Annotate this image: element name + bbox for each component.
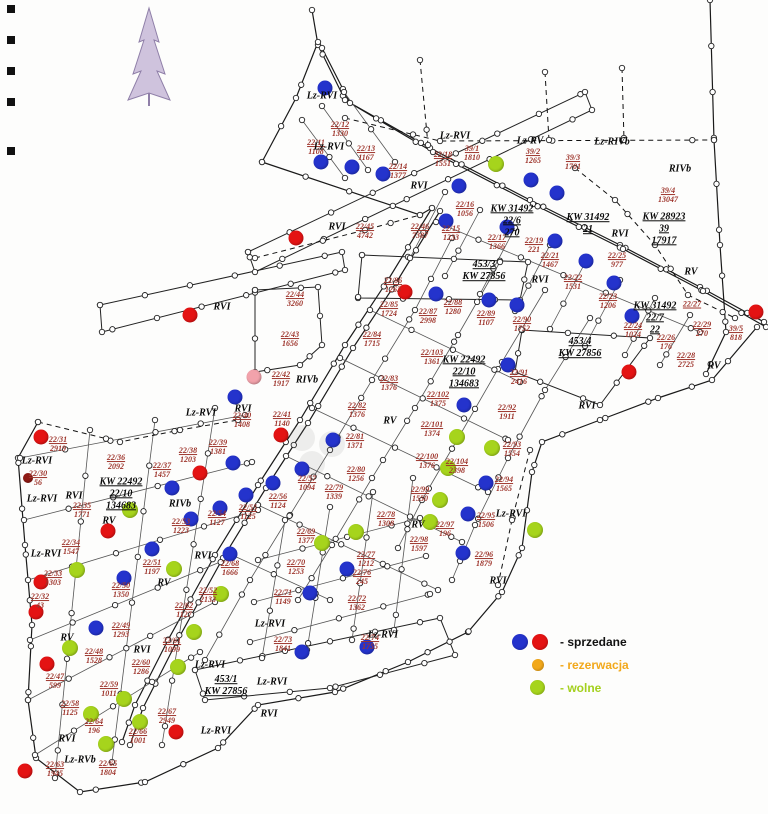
soil-class-label: RVI [410,181,427,192]
plot-label: 39/31701 [565,154,581,172]
soil-class-label: Lz-RVI [31,549,61,560]
plot-label: 22/872998 [419,308,437,326]
plot-label: 22/901752 [513,316,531,334]
plot-label: 22/781308 [377,511,395,529]
legend-label-wolne: - wolne [560,681,601,695]
soil-class-label: RVI [578,401,595,412]
plot-label: 22/571094 [298,475,316,493]
soil-class-label: Lz-RIVb [594,137,630,148]
plot-label: 22/29270 [693,321,711,339]
legend: - sprzedane - rezerwacja - wolne [512,634,629,703]
plot-label: 22/161056 [456,201,474,219]
plot-label: 22/3243 [31,593,49,611]
soil-class-label: Lz-RVI [255,619,285,630]
plot-label: 22/391381 [209,439,227,457]
plot-label: 22/151233 [442,225,460,243]
plot-label: 22/26176 [657,334,675,352]
land-register-label: KW 3149221 [567,212,610,236]
soil-class-label: RVI [611,229,628,240]
soil-class-label: Lz-RVb [64,755,96,766]
plot-label: 39/413047 [658,187,678,205]
plot-label: 22/831376 [380,375,398,393]
legend-label-sprzedane: - sprzedane [560,635,627,649]
legend-dot-green [530,680,545,695]
plot-label: 22/791339 [325,484,343,502]
soil-class-label: RV [707,361,720,372]
plot-label: 22/211467 [541,252,559,270]
plot-label: 22/282725 [677,352,695,370]
plot-label: 22/341547 [62,539,80,557]
plot-label: 22/941565 [495,476,513,494]
plot-label: 22/3056 [29,470,47,488]
plot-label: 22/481528 [85,648,103,666]
soil-class-label: RVI [234,404,251,415]
plot-label: 22/25977 [608,252,626,270]
plot-label: 22/921911 [498,404,516,422]
plot-label: 22/76245 [353,569,371,587]
land-register-label: 453/3KW 27856 [463,259,506,283]
plot-label: 22/651804 [99,760,117,778]
plot-label: 22/601286 [132,659,150,677]
soil-class-label: Lz-RVI [314,142,344,153]
soil-class-label: Lz-RVI [186,408,216,419]
soil-class-label: Lz-RVI [496,509,526,520]
plot-label: 22/531223 [172,518,190,536]
plot-label: 22/721362 [348,595,366,613]
plot-label: 22/881280 [444,299,462,317]
legend-item-sprzedane: - sprzedane [512,634,629,650]
legend-dot-red [532,634,548,650]
plot-label: 22/801256 [347,466,365,484]
plot-label: 22/141377 [389,163,407,181]
soil-class-label: Lz-RVI [257,677,287,688]
soil-class-label: RVI [58,734,75,745]
plot-label: 22/511197 [143,559,161,577]
plot-label: 22/661001 [129,728,147,746]
soil-class-label: Lz-RVI [307,91,337,102]
land-register-label: KW 2249222/10134683 [443,354,486,389]
plot-label: 22/411140 [273,411,291,429]
plot-label: 22/381203 [179,447,197,465]
plot-label: 22/362092 [107,454,125,472]
plot-label: 22/491293 [112,622,130,640]
land-register-label: KW 2249222/10134683 [100,476,143,511]
plot-label: 22/443260 [286,291,304,309]
soil-class-label: RV [60,633,73,644]
legend-item-rezerwacja: - rezerwacja [512,658,629,672]
plot-label: 22/561124 [269,493,287,511]
soil-class-label: RVI [260,709,277,720]
plot-label: 22/961879 [475,551,493,569]
plot-label: 39/5818 [729,325,743,343]
plot-label: 22/912416 [510,369,528,387]
plot-label: 22/47599 [46,673,64,691]
soil-class-label: Lz-RVI [201,726,231,737]
plot-label: 22/541127 [208,510,226,528]
land-register-label: KW 3149222/6270 [491,203,534,238]
plot-label: 22/591011 [100,681,118,699]
plot-label: 22/771212 [357,551,375,569]
plot-label: 22/811371 [346,433,364,451]
cadastral-map: 22/11110822/12133022/13116722/14137722/1… [0,0,768,814]
soil-class-label: Lz-RVI [27,494,57,505]
land-register-label: 453/1KW 27856 [205,674,248,698]
plot-label: 22/861263 [384,277,402,295]
plot-label: 22/1021375 [427,391,449,409]
plot-label: 22/711149 [274,589,292,607]
soil-class-label: Lz-RV [517,136,544,147]
land-register-label: KW 3149222/722 [634,300,677,335]
plot-label: 22/64196 [85,718,103,736]
plot-label: 22/701253 [287,559,305,577]
plot-label: 22/401408 [233,412,251,430]
soil-class-label: RVI [531,275,548,286]
plot-label: 22/931554 [503,441,521,459]
plot-label: 22/431656 [281,331,299,349]
plot-label: 22/621127 [175,602,193,620]
plot-label: 22/501350 [112,582,130,600]
plot-label: 22/331303 [44,570,62,588]
land-register-label: 453/4KW 27856 [559,336,602,360]
plot-label: 22/467387 [411,223,429,241]
plot-label: 22/131167 [357,145,375,163]
plot-label: 22/951506 [477,512,495,530]
plot-label: 22/672949 [158,708,176,726]
plot-label: 22/1031361 [421,349,443,367]
plot-label: 39/11810 [464,145,480,163]
soil-class-label: Lz-RVI [368,630,398,641]
soil-class-label: RVI [194,551,211,562]
plot-label: 22/231206 [599,293,617,311]
plot-label: 22/121330 [331,121,349,139]
soil-class-label: RV [383,416,396,427]
plot-label: 22/631945 [46,761,64,779]
plot-label: 22/351771 [73,502,91,520]
soil-class-label: Lz-RVI [22,456,52,467]
plot-label: 22/581125 [61,700,79,718]
plot-label: 22/981597 [410,536,428,554]
soil-class-label: Lz-RVI [195,660,225,671]
plot-label: 22/891107 [477,310,495,328]
legend-label-rezerwacja: - rezerwacja [560,658,629,672]
plot-label: 22/421917 [272,371,290,389]
soil-class-label: RIVb [669,164,691,175]
legend-dot-blue [512,634,528,650]
plot-label: 22/841715 [363,331,381,349]
soil-class-label: RVI [133,645,150,656]
plot-label: 22/551125 [239,504,257,522]
plot-label: 22/1011374 [421,421,443,439]
legend-item-wolne: - wolne [512,680,629,695]
plot-label: 22/821376 [348,402,366,420]
legend-dot-orange [532,659,544,671]
soil-class-label: RVI [213,302,230,313]
plot-label: 22/681666 [221,560,239,578]
soil-class-label: RVI [328,222,345,233]
plot-label: 22/991550 [411,486,429,504]
plot-label: 22/1001376 [416,453,438,471]
land-register-label: KW 289233917917 [643,211,686,246]
plot-label: 22/611099 [163,637,181,655]
plot-label: 39/21265 [525,148,541,166]
soil-class-label: Lz-RVI [440,131,470,142]
soil-class-label: RV [157,578,170,589]
plot-label: 22/731841 [274,636,292,654]
plot-label: 22/454742 [356,223,374,241]
soil-class-label: RIVb [296,375,318,386]
soil-class-label: RV [102,516,115,527]
plot-label: 22/312919 [49,436,67,454]
plot-label: 22/522133 [199,587,217,605]
plot-label: 22/371457 [153,462,171,480]
plot-label: 22/221531 [564,274,582,292]
soil-class-label: RV [411,520,424,531]
soil-class-label: RV [684,267,697,278]
soil-class-label: RVI [65,491,82,502]
labels-layer: 22/11110822/12133022/13116722/14137722/1… [0,0,768,814]
soil-class-label: RVI [489,576,506,587]
plot-label: 22/691377 [297,528,315,546]
plot-label: 22/181551 [434,151,452,169]
plot-label: 22/27 [683,301,701,310]
soil-class-label: RIVb [169,499,191,510]
plot-label: 22/97196 [436,521,454,539]
plot-label: 22/1042398 [446,458,468,476]
plot-label: 22/851724 [380,301,398,319]
